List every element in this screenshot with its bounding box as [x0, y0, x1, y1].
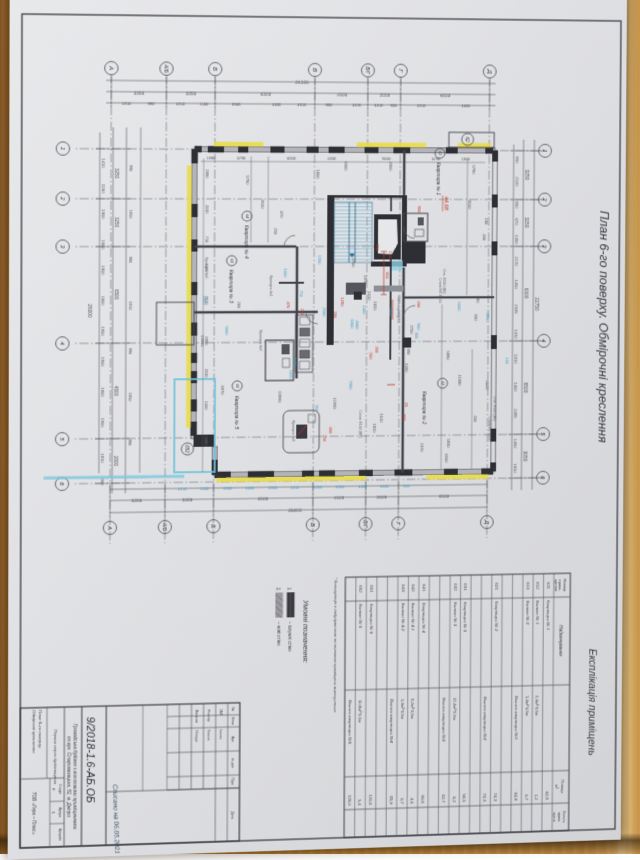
svg-text:5000: 5000: [457, 302, 462, 312]
svg-text:Іванов: Іванов: [219, 729, 223, 739]
svg-text:3250: 3250: [134, 91, 145, 96]
svg-text:5830: 5830: [446, 438, 451, 448]
svg-text:9100: 9100: [467, 200, 472, 210]
svg-text:900: 900: [402, 414, 407, 422]
svg-text:1810: 1810: [291, 485, 301, 490]
svg-text:5: 5: [51, 811, 56, 814]
svg-text:2030: 2030: [205, 205, 210, 214]
svg-text:ТОВ «Гера – Плюс»: ТОВ «Гера – Плюс»: [31, 792, 36, 836]
svg-text:1500: 1500: [314, 485, 324, 490]
svg-text:200: 200: [416, 301, 421, 309]
svg-text:Стадія: Стадія: [58, 784, 62, 795]
svg-text:1900: 1900: [335, 484, 345, 489]
svg-text:– існуючі стіни: – існуючі стіни: [287, 621, 292, 652]
svg-text:Балкон № 2: Балкон № 2: [525, 601, 530, 626]
svg-text:22750: 22750: [533, 297, 539, 311]
svg-text:300: 300: [414, 332, 419, 340]
svg-text:13980: 13980: [277, 391, 282, 403]
svg-text:6,2: 6,2: [451, 796, 456, 803]
svg-text:470: 470: [286, 302, 291, 310]
svg-text:710: 710: [204, 236, 209, 243]
svg-text:611: 611: [546, 582, 551, 590]
svg-text:26000: 26000: [288, 508, 302, 514]
svg-text:0,7: 0,7: [399, 798, 404, 805]
svg-text:1810: 1810: [100, 453, 105, 463]
svg-text:1800: 1800: [245, 485, 255, 490]
svg-text:180: 180: [484, 218, 489, 226]
svg-text:Фрамуга №5: Фрамуга №5: [204, 257, 208, 278]
svg-text:670: 670: [514, 218, 519, 226]
svg-text:В/Г: В/Г: [362, 520, 368, 529]
svg-text:6300: 6300: [260, 92, 271, 97]
svg-text:Обмірочні креслення: Обмірочні креслення: [32, 710, 37, 754]
svg-text:1450: 1450: [514, 280, 519, 290]
svg-text:Громадська будівля з житловими: Громадська будівля з житловими приміщенн…: [72, 724, 77, 830]
svg-text:280: 280: [475, 296, 480, 304]
svg-text:Квартира № 1: Квартира № 1: [546, 600, 551, 631]
svg-text:Отв. Ф140 (ВК): Отв. Ф140 (ВК): [492, 396, 496, 421]
svg-text:Всього квартира №5: Всього квартира №5: [347, 700, 352, 745]
svg-text:390: 390: [406, 348, 411, 356]
svg-text:1900: 1900: [101, 209, 106, 219]
svg-text:Арк: Арк: [230, 736, 234, 742]
svg-text:В: В: [311, 68, 317, 72]
svg-text:А: А: [106, 525, 112, 530]
svg-text:2170: 2170: [514, 257, 519, 267]
svg-text:Фрамуга №1: Фрамуга №1: [269, 275, 273, 296]
svg-text:7060: 7060: [348, 380, 353, 390]
svg-text:2560: 2560: [322, 307, 327, 317]
svg-text:2,4м²*0,5м: 2,4м²*0,5м: [535, 695, 540, 715]
svg-text:12380: 12380: [332, 397, 337, 409]
svg-text:1400: 1400: [204, 401, 209, 410]
svg-text:3: 3: [58, 245, 64, 249]
svg-text:1,4м²*0,5м: 1,4м²*0,5м: [524, 696, 529, 716]
svg-text:А: А: [107, 65, 113, 70]
svg-text:1810: 1810: [513, 463, 518, 473]
svg-text:1900: 1900: [100, 418, 105, 428]
svg-text:900: 900: [416, 323, 421, 331]
svg-text:260: 260: [333, 311, 338, 319]
svg-text:6: 6: [539, 476, 545, 480]
svg-text:Перша черга будівництва: Перша черга будівництва: [53, 729, 58, 784]
svg-text:6500: 6500: [522, 382, 528, 393]
svg-text:6: 6: [58, 482, 64, 486]
svg-text:2.: 2.: [275, 587, 280, 591]
svg-text:5890: 5890: [446, 351, 451, 361]
svg-text:1410: 1410: [101, 158, 106, 168]
svg-text:Квартира № 2: Квартира № 2: [421, 391, 427, 424]
svg-text:Квартира № 3: Квартира № 3: [227, 270, 233, 304]
svg-text:1410: 1410: [514, 329, 519, 339]
svg-text:Балкон № 5: Балкон № 5: [358, 604, 363, 629]
svg-text:940: 940: [403, 483, 410, 488]
svg-text:930: 930: [515, 156, 520, 164]
svg-text:б4: б4: [245, 214, 249, 218]
svg-text:6300: 6300: [287, 156, 296, 161]
svg-text:65,9: 65,9: [389, 796, 394, 805]
svg-text:126,0: 126,0: [347, 795, 352, 807]
svg-text:1010: 1010: [367, 291, 372, 301]
svg-text:А/Б: А/Б: [161, 522, 167, 532]
svg-text:1900: 1900: [380, 484, 390, 489]
svg-text:60,6: 60,6: [420, 795, 425, 804]
svg-text:2410: 2410: [513, 354, 518, 364]
svg-text:1,4м²*0,5м: 1,4м²*0,5м: [400, 699, 405, 720]
svg-text:Всього квартира №1: Всього квартира №1: [514, 696, 519, 740]
svg-text:1450: 1450: [513, 439, 518, 449]
svg-text:1910: 1910: [128, 301, 133, 310]
svg-text:1000: 1000: [283, 268, 288, 278]
svg-text:А/Б: А/Б: [163, 64, 169, 74]
svg-text:б1: б1: [438, 151, 442, 155]
svg-text:прим-: прим-: [557, 812, 561, 823]
svg-text:1180: 1180: [200, 486, 209, 491]
svg-text:1010: 1010: [374, 103, 384, 108]
svg-text:Квартира № 3: Квартира № 3: [463, 602, 468, 633]
svg-text:1980: 1980: [204, 437, 209, 446]
svg-text:Б: Б: [209, 524, 215, 528]
svg-text:б5: б5: [235, 384, 239, 389]
svg-text:3250: 3250: [114, 217, 119, 228]
svg-text:400: 400: [328, 427, 333, 435]
svg-text:1,2: 1,2: [534, 794, 539, 801]
svg-text:200: 200: [374, 346, 379, 354]
svg-text:4300: 4300: [388, 162, 393, 172]
svg-text:1900: 1900: [223, 486, 233, 491]
svg-text:б2: б2: [465, 137, 470, 143]
svg-text:2120: 2120: [515, 177, 520, 187]
svg-text:1910: 1910: [297, 102, 307, 107]
svg-text:Стояк ВК Ф100: Стояк ВК Ф100: [487, 416, 491, 441]
svg-text:1900: 1900: [100, 326, 105, 336]
svg-text:642: 642: [411, 584, 416, 592]
svg-text:прим-: прим-: [558, 580, 563, 592]
svg-text:3250: 3250: [114, 168, 119, 179]
svg-text:1900: 1900: [100, 265, 105, 275]
svg-text:4: 4: [540, 339, 546, 343]
svg-text:10,8м²*0,5м: 10,8м²*0,5м: [358, 700, 363, 723]
svg-text:651: 651: [369, 585, 374, 593]
svg-text:2000: 2000: [113, 456, 118, 467]
svg-text:Балкон № 3: Балкон № 3: [452, 602, 457, 627]
svg-text:3250: 3250: [523, 217, 529, 228]
svg-text:Підп: Підп: [230, 778, 234, 785]
svg-text:1550: 1550: [388, 251, 393, 261]
svg-text:1800: 1800: [101, 240, 106, 250]
svg-text:Виконав: Виконав: [194, 710, 198, 723]
svg-text:Фрамуга №3: Фрамуга №3: [291, 420, 295, 441]
svg-text:5790: 5790: [432, 156, 441, 161]
svg-text:260: 260: [100, 478, 105, 486]
svg-text:900: 900: [417, 206, 422, 214]
svg-text:200: 200: [473, 415, 478, 423]
svg-text:470: 470: [279, 211, 284, 219]
svg-text:б3: б3: [229, 259, 233, 264]
svg-text:Г: Г: [397, 69, 403, 73]
svg-text:Списано на 06.05.2021: Списано на 06.05.2021: [111, 784, 120, 854]
svg-text:1950: 1950: [128, 210, 133, 219]
svg-text:1900: 1900: [268, 485, 278, 490]
svg-text:120: 120: [505, 357, 510, 365]
svg-text:652: 652: [358, 585, 363, 593]
svg-text:612: 612: [536, 582, 541, 590]
svg-text:632: 632: [453, 584, 458, 592]
svg-text:– нові стіни: – нові стіни: [276, 622, 281, 646]
svg-text:Всього квартира №3: Всього квартира №3: [441, 698, 446, 742]
svg-text:3250: 3250: [182, 497, 193, 502]
svg-text:621: 621: [494, 583, 499, 591]
svg-text:1010: 1010: [379, 413, 384, 423]
svg-text:1.: 1.: [286, 587, 291, 591]
svg-text:1910: 1910: [122, 101, 132, 106]
svg-text:1800: 1800: [272, 102, 282, 107]
svg-text:1330: 1330: [317, 255, 322, 265]
svg-text:Балкон № 1: Балкон № 1: [535, 600, 540, 625]
svg-text:Квартира № 4: Квартира № 4: [243, 225, 249, 259]
svg-text:5790: 5790: [471, 165, 476, 175]
svg-text:1: 1: [541, 149, 547, 152]
svg-text:260: 260: [236, 302, 241, 310]
svg-text:44,68: 44,68: [443, 196, 449, 211]
svg-text:4,6: 4,6: [410, 798, 415, 805]
svg-text:Балкон № 4.2: Балкон № 4.2: [400, 603, 405, 631]
svg-text:Експлікація приміщень: Експлікація приміщень: [586, 649, 597, 756]
svg-text:Квартира № 5: Квартира № 5: [369, 604, 374, 635]
svg-text:6970: 6970: [220, 385, 225, 395]
svg-text:1800: 1800: [358, 484, 368, 489]
svg-text:В: В: [309, 523, 315, 527]
svg-text:2000: 2000: [376, 495, 387, 500]
svg-text:24330: 24330: [295, 80, 309, 86]
svg-text:1945: 1945: [232, 102, 242, 107]
svg-text:6300: 6300: [343, 161, 348, 171]
svg-text:26000: 26000: [86, 304, 92, 318]
svg-text:1820: 1820: [372, 423, 377, 433]
svg-text:3000: 3000: [202, 296, 207, 306]
svg-text:1980: 1980: [204, 336, 209, 345]
svg-text:56,5: 56,5: [462, 794, 467, 803]
svg-text:643: 643: [400, 585, 405, 593]
svg-text:1090: 1090: [404, 363, 409, 373]
svg-text:1: 1: [59, 147, 65, 150]
svg-text:Площа: Площа: [560, 780, 565, 794]
svg-text:Квартира № 1: Квартира № 1: [435, 162, 441, 195]
svg-text:* Калькуляція з добудуванням п: * Калькуляція з добудуванням по тиловим …: [333, 577, 339, 713]
svg-text:120,6: 120,6: [368, 794, 373, 806]
svg-text:Д: Д: [486, 68, 492, 74]
svg-text:5,4: 5,4: [357, 799, 362, 806]
svg-text:3950: 3950: [485, 313, 490, 323]
svg-text:74,3: 74,3: [482, 793, 487, 802]
svg-text:1910: 1910: [417, 103, 427, 108]
svg-text:9/2018-1.6-АБ.ОБ: 9/2018-1.6-АБ.ОБ: [84, 717, 95, 804]
svg-text:1620: 1620: [288, 370, 293, 380]
svg-text:6300: 6300: [523, 288, 529, 299]
svg-text:Кільк: Кільк: [230, 717, 234, 726]
svg-text:Стояк ВК Ф100: Стояк ВК Ф100: [438, 278, 442, 303]
svg-text:74,3: 74,3: [493, 793, 498, 802]
svg-text:1970: 1970: [419, 443, 424, 453]
svg-text:1820: 1820: [373, 301, 378, 311]
svg-text:62,7: 62,7: [441, 794, 446, 803]
svg-text:23: 23: [404, 402, 409, 407]
svg-text:Всього квартира №4: Всього квартира №4: [389, 699, 394, 744]
svg-text:Квартира № 2: Квартира № 2: [494, 601, 499, 632]
svg-text:Сміттєпровід В1: Сміттєпровід В1: [396, 296, 400, 323]
svg-text:1970: 1970: [363, 275, 368, 285]
svg-text:Б: Б: [211, 67, 217, 71]
svg-text:250: 250: [322, 435, 327, 443]
svg-text:990: 990: [148, 101, 156, 106]
svg-text:м²: м²: [554, 784, 559, 789]
svg-text:В/Г: В/Г: [364, 67, 370, 76]
svg-text:1980: 1980: [205, 169, 210, 178]
svg-text:1180: 1180: [200, 101, 210, 106]
svg-text:Квартира № 5: Квартира № 5: [233, 396, 239, 430]
svg-text:4500: 4500: [337, 92, 348, 97]
svg-text:3250: 3250: [131, 498, 142, 503]
svg-text:1970: 1970: [352, 103, 362, 108]
svg-text:1800: 1800: [461, 103, 471, 108]
svg-text:4: 4: [58, 342, 64, 346]
svg-text:11680: 11680: [457, 375, 462, 387]
svg-text:3250: 3250: [523, 169, 529, 180]
svg-text:62,9: 62,9: [544, 791, 549, 800]
svg-text:1900: 1900: [100, 357, 105, 367]
svg-text:б2: б2: [440, 381, 444, 386]
svg-text:250: 250: [300, 309, 305, 317]
svg-text:980: 980: [128, 256, 133, 263]
svg-text:980: 980: [128, 439, 133, 446]
svg-text:3250: 3250: [186, 91, 197, 96]
svg-text:641: 641: [421, 584, 426, 592]
svg-text:Аркуш: Аркуш: [57, 807, 61, 818]
svg-text:990: 990: [128, 348, 133, 355]
svg-text:Найменування: Найменування: [558, 625, 564, 657]
svg-text:64,8: 64,8: [514, 792, 519, 801]
svg-text:Г: Г: [394, 522, 400, 526]
svg-text:щень: щень: [552, 813, 556, 822]
svg-text:Фрамуга №2: Фрамуга №2: [258, 330, 262, 351]
svg-text:1800: 1800: [315, 169, 320, 179]
svg-text:250: 250: [273, 228, 278, 236]
svg-text:2535: 2535: [514, 304, 519, 314]
svg-text:Дата: Дата: [230, 811, 234, 819]
svg-text:4300: 4300: [327, 156, 336, 161]
svg-text:2495: 2495: [513, 409, 518, 419]
svg-text:Р: Р: [51, 788, 56, 791]
svg-text:2: 2: [58, 196, 64, 201]
svg-text:330: 330: [473, 314, 478, 322]
svg-text:710: 710: [299, 290, 304, 298]
svg-text:Квартира № 4: Квартира № 4: [421, 603, 426, 634]
svg-text:1400: 1400: [513, 382, 518, 392]
svg-text:6500: 6500: [114, 289, 119, 300]
svg-text:950: 950: [314, 405, 319, 413]
svg-text:4360: 4360: [355, 320, 360, 330]
svg-text:6500: 6500: [258, 496, 269, 501]
svg-text:1800: 1800: [461, 156, 470, 161]
svg-text:930: 930: [390, 103, 397, 108]
svg-text:5: 5: [58, 437, 64, 441]
svg-text:9,2м²*0,5м: 9,2м²*0,5м: [410, 698, 415, 719]
svg-text:1410: 1410: [178, 486, 188, 491]
svg-text:9100: 9100: [260, 199, 265, 209]
svg-text:6500: 6500: [439, 494, 450, 499]
svg-text:1980: 1980: [206, 155, 215, 160]
svg-text:Номер: Номер: [563, 579, 568, 593]
svg-text:3: 3: [540, 245, 546, 249]
svg-text:1800: 1800: [100, 296, 105, 306]
svg-text:по вул. Староказацька, 52, м.: по вул. Староказацька, 52, м. Дніпро: [66, 736, 71, 817]
svg-text:Всього квартира №2: Всього квартира №2: [483, 697, 488, 741]
svg-text:2000: 2000: [380, 93, 391, 98]
svg-text:6000: 6000: [485, 380, 490, 390]
svg-text:430: 430: [482, 234, 487, 242]
svg-text:613: 613: [525, 582, 530, 590]
svg-text:12,4м²*0,5м: 12,4м²*0,5м: [452, 697, 457, 720]
svg-text:1400: 1400: [362, 305, 367, 315]
svg-text:1950: 1950: [128, 392, 133, 401]
svg-text:5000: 5000: [224, 326, 229, 336]
svg-text:5: 5: [539, 432, 545, 436]
svg-text:6500: 6500: [444, 453, 449, 463]
svg-text:1450: 1450: [514, 235, 519, 245]
svg-text:Коваль: Коваль: [207, 730, 211, 741]
svg-text:щення: щення: [553, 579, 558, 592]
svg-text:652: 652: [185, 445, 190, 453]
svg-text:5790: 5790: [245, 175, 250, 185]
svg-text:4500: 4500: [113, 386, 118, 397]
svg-text:5790: 5790: [237, 155, 246, 160]
svg-text:4500: 4500: [334, 495, 345, 500]
svg-text:990: 990: [128, 165, 133, 172]
svg-text:Умовні позначення:: Умовні позначення:: [301, 599, 309, 663]
svg-text:План 6-го поверху. Обмірочні к: План 6-го поверху. Обмірочні креслення: [596, 211, 611, 443]
svg-text:Аркушів: Аркушів: [57, 829, 61, 841]
svg-text:6500: 6500: [440, 93, 451, 98]
svg-text:200: 200: [368, 352, 373, 360]
svg-text:1910: 1910: [176, 101, 186, 106]
svg-text:2030: 2030: [204, 369, 209, 378]
svg-text:1290: 1290: [340, 297, 345, 307]
svg-text:1800: 1800: [100, 387, 105, 397]
svg-text:Отв. Ф140 (ВК): Отв. Ф140 (ВК): [442, 269, 446, 294]
svg-text:631: 631: [463, 583, 468, 591]
svg-text:Кол-ть: Кол-ть: [562, 811, 566, 822]
svg-text:810: 810: [375, 244, 380, 252]
svg-text:Н.контр: Н.контр: [207, 709, 211, 721]
svg-text:ГАП: ГАП: [219, 709, 223, 716]
svg-text:0,7: 0,7: [524, 794, 529, 801]
svg-text:3050: 3050: [522, 451, 528, 462]
svg-text:810: 810: [385, 272, 390, 280]
svg-text:Петрук: Петрук: [194, 730, 198, 743]
svg-text:Зм: Зм: [230, 707, 234, 712]
svg-text:990: 990: [325, 102, 332, 107]
svg-text:Д: Д: [483, 519, 489, 525]
svg-text:2: 2: [541, 197, 547, 202]
svg-text:Балкон № 4.1: Балкон № 4.1: [411, 603, 416, 631]
svg-text:1400: 1400: [293, 358, 298, 368]
svg-text:2700: 2700: [351, 258, 356, 268]
svg-text:Стояк Ф100 (ВК): Стояк Ф100 (ВК): [358, 410, 362, 437]
svg-text:№ док: № док: [230, 758, 234, 769]
svg-text:1180: 1180: [101, 184, 106, 194]
svg-text:9100: 9100: [382, 156, 391, 161]
svg-text:930: 930: [514, 201, 519, 209]
